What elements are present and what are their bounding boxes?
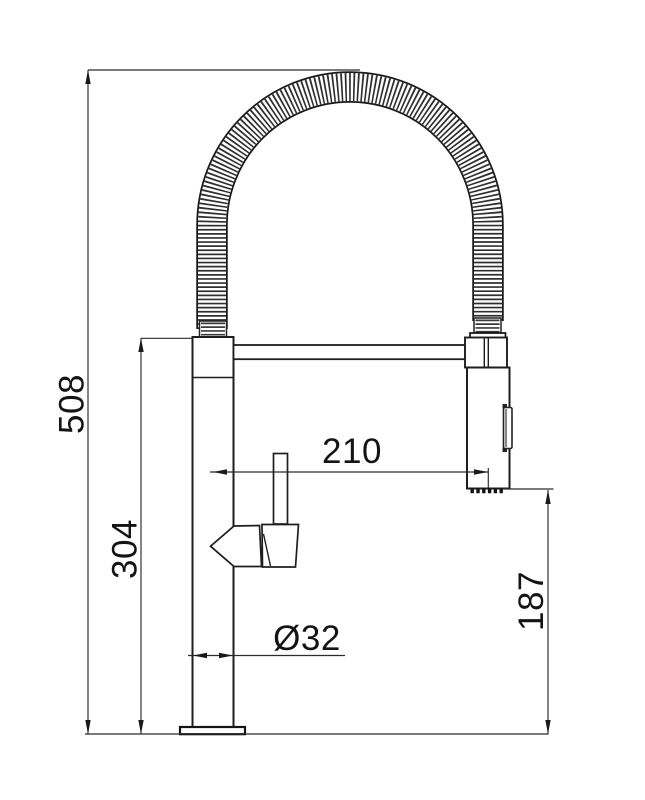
dim-label-base-diameter: Ø32: [273, 619, 341, 658]
arrowhead-down: [85, 720, 90, 734]
base-plate: [180, 727, 245, 734]
handle-body: [262, 525, 299, 568]
arrowhead-up: [545, 490, 550, 504]
spout-arm: [234, 345, 466, 359]
handle-stem: [274, 454, 288, 525]
arrowhead-down: [545, 720, 550, 734]
dim-label-column-height: 304: [106, 519, 145, 579]
spray-head: [465, 333, 512, 491]
dim-label-outlet-height: 187: [512, 571, 551, 631]
faucet-dimension-diagram: 508 304 210 Ø32 187: [0, 0, 645, 800]
spray-head-nipple: [474, 318, 501, 334]
arrowhead-up: [85, 70, 90, 84]
spring-hose-fill: [212, 87, 488, 329]
supply-nipple-left: [200, 321, 227, 337]
technical-drawing: 508 304 210 Ø32 187: [0, 0, 645, 800]
arrowhead-up: [138, 338, 143, 352]
spray-head-clip: [504, 408, 513, 449]
dim-label-total-height: 508: [53, 374, 92, 434]
arrowhead-down: [138, 720, 143, 734]
dim-label-spout-reach: 210: [322, 432, 382, 471]
spray-head-connector: [465, 338, 507, 368]
spring-hose: [212, 87, 488, 329]
